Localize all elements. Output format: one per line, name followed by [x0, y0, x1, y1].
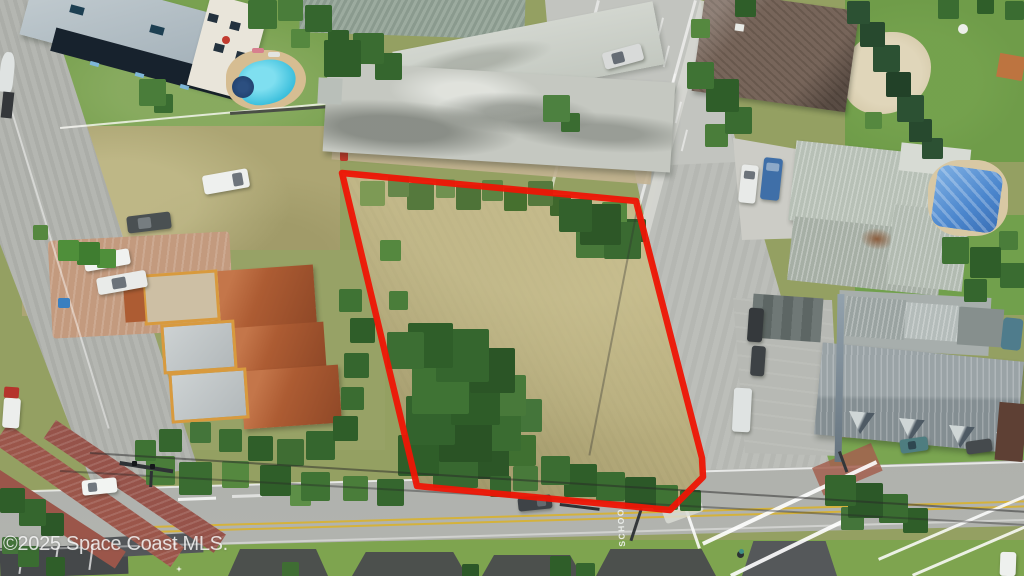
blue-bin — [58, 298, 70, 308]
rooftop-vent — [735, 23, 745, 31]
traffic-signal-head — [150, 464, 155, 469]
parked-car-white — [1000, 552, 1017, 576]
driveway-stub — [352, 552, 467, 576]
dark-brown-roof — [995, 402, 1024, 462]
townhome-lanai-roof — [168, 367, 249, 423]
townhome-courtyard — [141, 269, 220, 325]
covered-pool — [930, 164, 1004, 235]
patio-table — [958, 24, 968, 34]
parked-van-white — [732, 388, 752, 433]
rooftop-umbrella — [222, 36, 230, 44]
storage-shed — [904, 302, 961, 342]
mls-watermark: ©2025 Space Coast MLS. — [3, 533, 228, 556]
cyclist-shirt — [739, 549, 744, 554]
aerial-photo: SCHOOL — [0, 0, 1024, 576]
driveway-stub — [596, 549, 716, 576]
pool-lounger — [252, 48, 264, 53]
teal-boat-tarp — [1000, 317, 1023, 351]
townhome-roof — [240, 365, 342, 430]
driveway-stub — [482, 555, 582, 576]
truck-cab-red — [4, 386, 20, 398]
storage-shed — [844, 296, 907, 340]
pool-lounger — [268, 52, 280, 57]
storage-shed — [957, 306, 1005, 347]
patio-umbrella — [232, 76, 254, 98]
townhome-lanai-roof — [160, 319, 237, 374]
driveway-stub — [228, 549, 328, 576]
parked-car-dark — [750, 346, 766, 377]
parked-car-dark — [747, 308, 764, 343]
small-shed — [317, 77, 342, 104]
trees-bottom-center — [0, 0, 1, 1]
orange-shed-roof — [996, 53, 1024, 81]
traffic-signal-head — [132, 461, 137, 466]
truck-white-red — [2, 397, 21, 428]
